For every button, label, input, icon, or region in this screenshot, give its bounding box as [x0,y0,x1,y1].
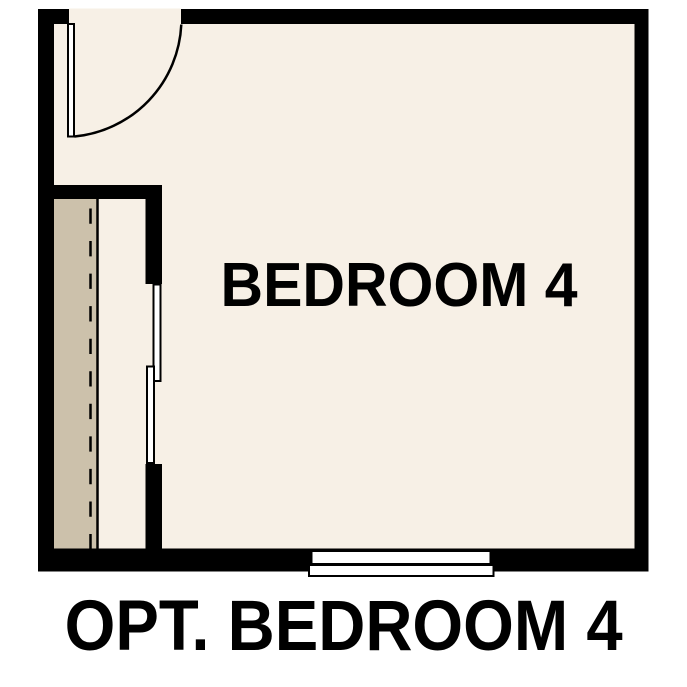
svg-text:OPT. BEDROOM 4: OPT. BEDROOM 4 [65,587,623,666]
svg-text:BEDROOM 4: BEDROOM 4 [221,250,578,320]
